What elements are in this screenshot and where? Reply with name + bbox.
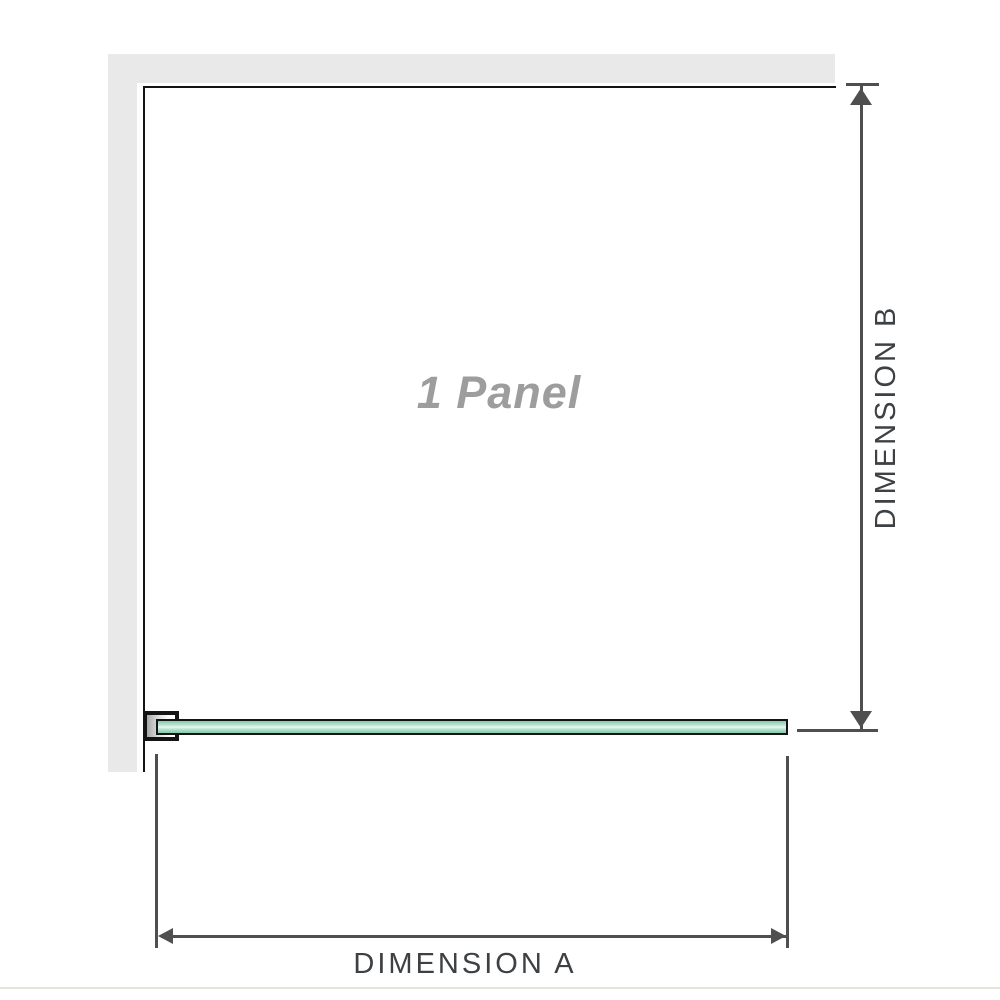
panel-dimension-diagram: 1 Panel DIMENSION B DIMENSION A bbox=[0, 0, 1000, 1000]
arrow-left-icon bbox=[158, 928, 173, 944]
dimension-a-extension-left bbox=[155, 754, 158, 948]
dimension-b-bottom-tick bbox=[797, 729, 878, 732]
wall-left bbox=[108, 54, 137, 772]
dimension-b-line bbox=[860, 86, 863, 729]
arrow-right-icon bbox=[771, 928, 786, 944]
arrow-down-icon bbox=[850, 711, 872, 728]
panel-count-label: 1 Panel bbox=[339, 366, 659, 420]
arrow-up-icon bbox=[850, 88, 872, 105]
panel-area-border-left bbox=[143, 86, 145, 772]
dimension-b-label: DIMENSION B bbox=[871, 267, 901, 567]
dimension-a-line bbox=[161, 935, 786, 938]
dimension-a-label: DIMENSION A bbox=[315, 948, 615, 980]
dimension-a-extension-right bbox=[786, 756, 789, 948]
bottom-separator bbox=[0, 987, 1000, 989]
glass-panel bbox=[156, 719, 788, 735]
panel-area-border-top bbox=[143, 86, 836, 88]
wall-top bbox=[108, 54, 835, 83]
